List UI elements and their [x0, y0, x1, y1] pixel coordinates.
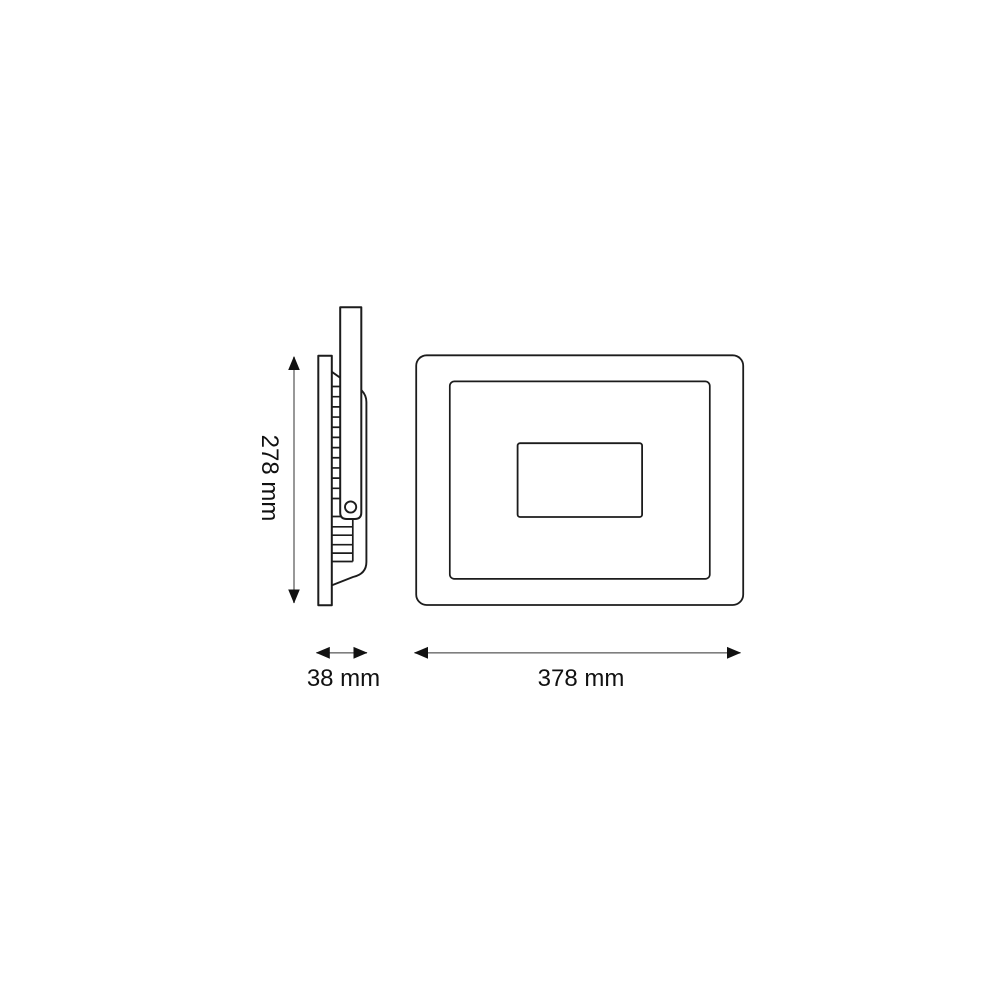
- svg-text:278 mm: 278 mm: [256, 435, 283, 522]
- svg-text:38 mm: 38 mm: [307, 665, 380, 692]
- svg-text:378 mm: 378 mm: [538, 665, 625, 692]
